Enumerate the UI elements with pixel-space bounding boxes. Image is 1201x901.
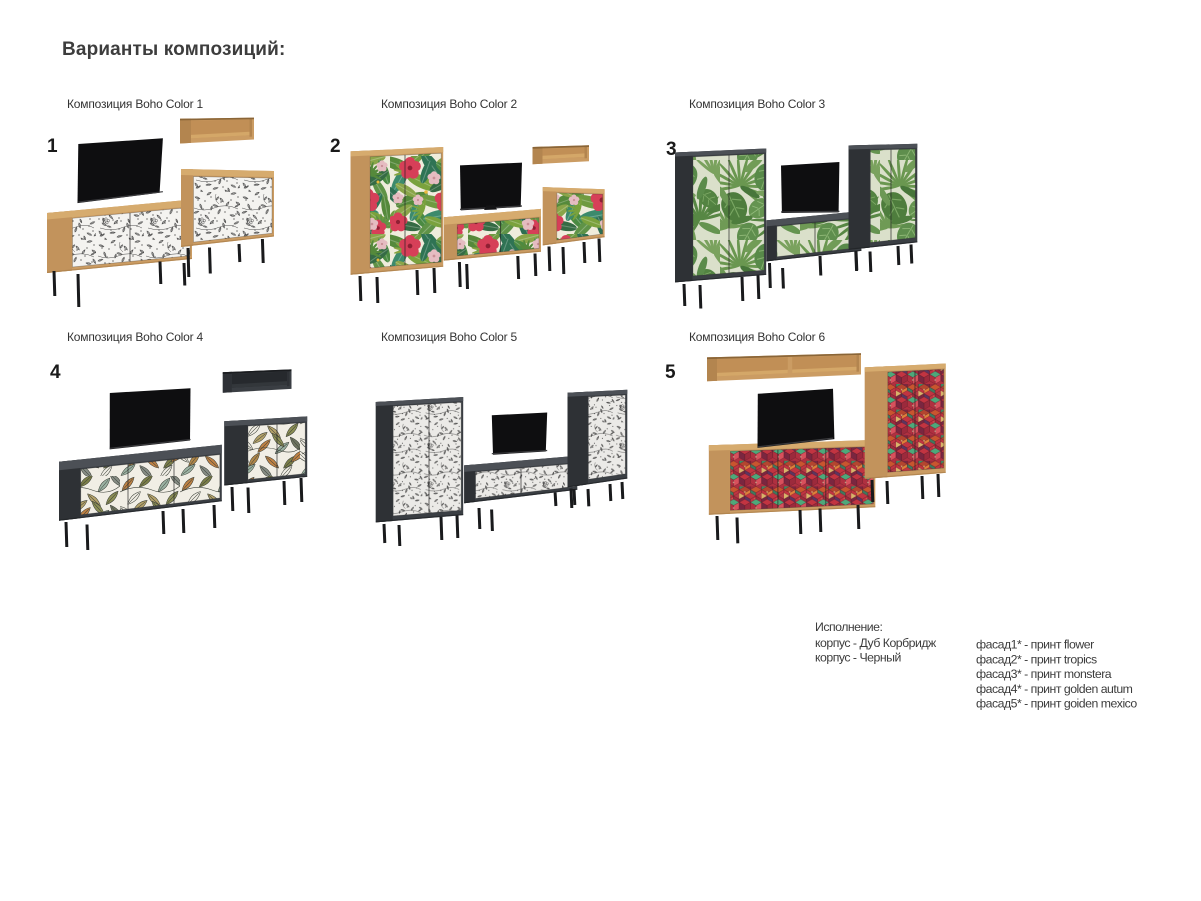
svg-text:5: 5 <box>665 362 676 383</box>
svg-text:Варианты композиций:: Варианты композиций: <box>62 39 285 60</box>
svg-text:фасад4* - принт golden autum: фасад4* - принт golden autum <box>976 682 1133 696</box>
svg-text:Исполнение:: Исполнение: <box>815 620 883 634</box>
svg-text:3: 3 <box>666 139 677 160</box>
svg-text:Композиция Boho Color 6: Композиция Boho Color 6 <box>689 330 826 344</box>
svg-text:Композиция Boho Color 4: Композиция Boho Color 4 <box>67 330 204 344</box>
svg-text:4: 4 <box>50 362 61 383</box>
svg-text:фасад1* - принт flower: фасад1* - принт flower <box>976 638 1094 652</box>
svg-text:корпус - Черный: корпус - Черный <box>815 651 901 665</box>
svg-text:Композиция Boho Color 1: Композиция Boho Color 1 <box>67 97 204 111</box>
svg-text:фасад3* - принт monstera: фасад3* - принт monstera <box>976 667 1112 681</box>
svg-text:корпус - Дуб Корбридж: корпус - Дуб Корбридж <box>815 636 937 650</box>
svg-text:фасад5* - принт goiden mexico: фасад5* - принт goiden mexico <box>976 697 1137 711</box>
svg-text:Композиция Boho Color 5: Композиция Boho Color 5 <box>381 330 518 344</box>
svg-text:фасад2* - принт tropics: фасад2* - принт tropics <box>976 653 1097 667</box>
svg-text:1: 1 <box>47 136 58 157</box>
svg-text:Композиция Boho Color 3: Композиция Boho Color 3 <box>689 97 826 111</box>
svg-text:Композиция Boho Color 2: Композиция Boho Color 2 <box>381 97 518 111</box>
svg-text:2: 2 <box>330 136 341 157</box>
